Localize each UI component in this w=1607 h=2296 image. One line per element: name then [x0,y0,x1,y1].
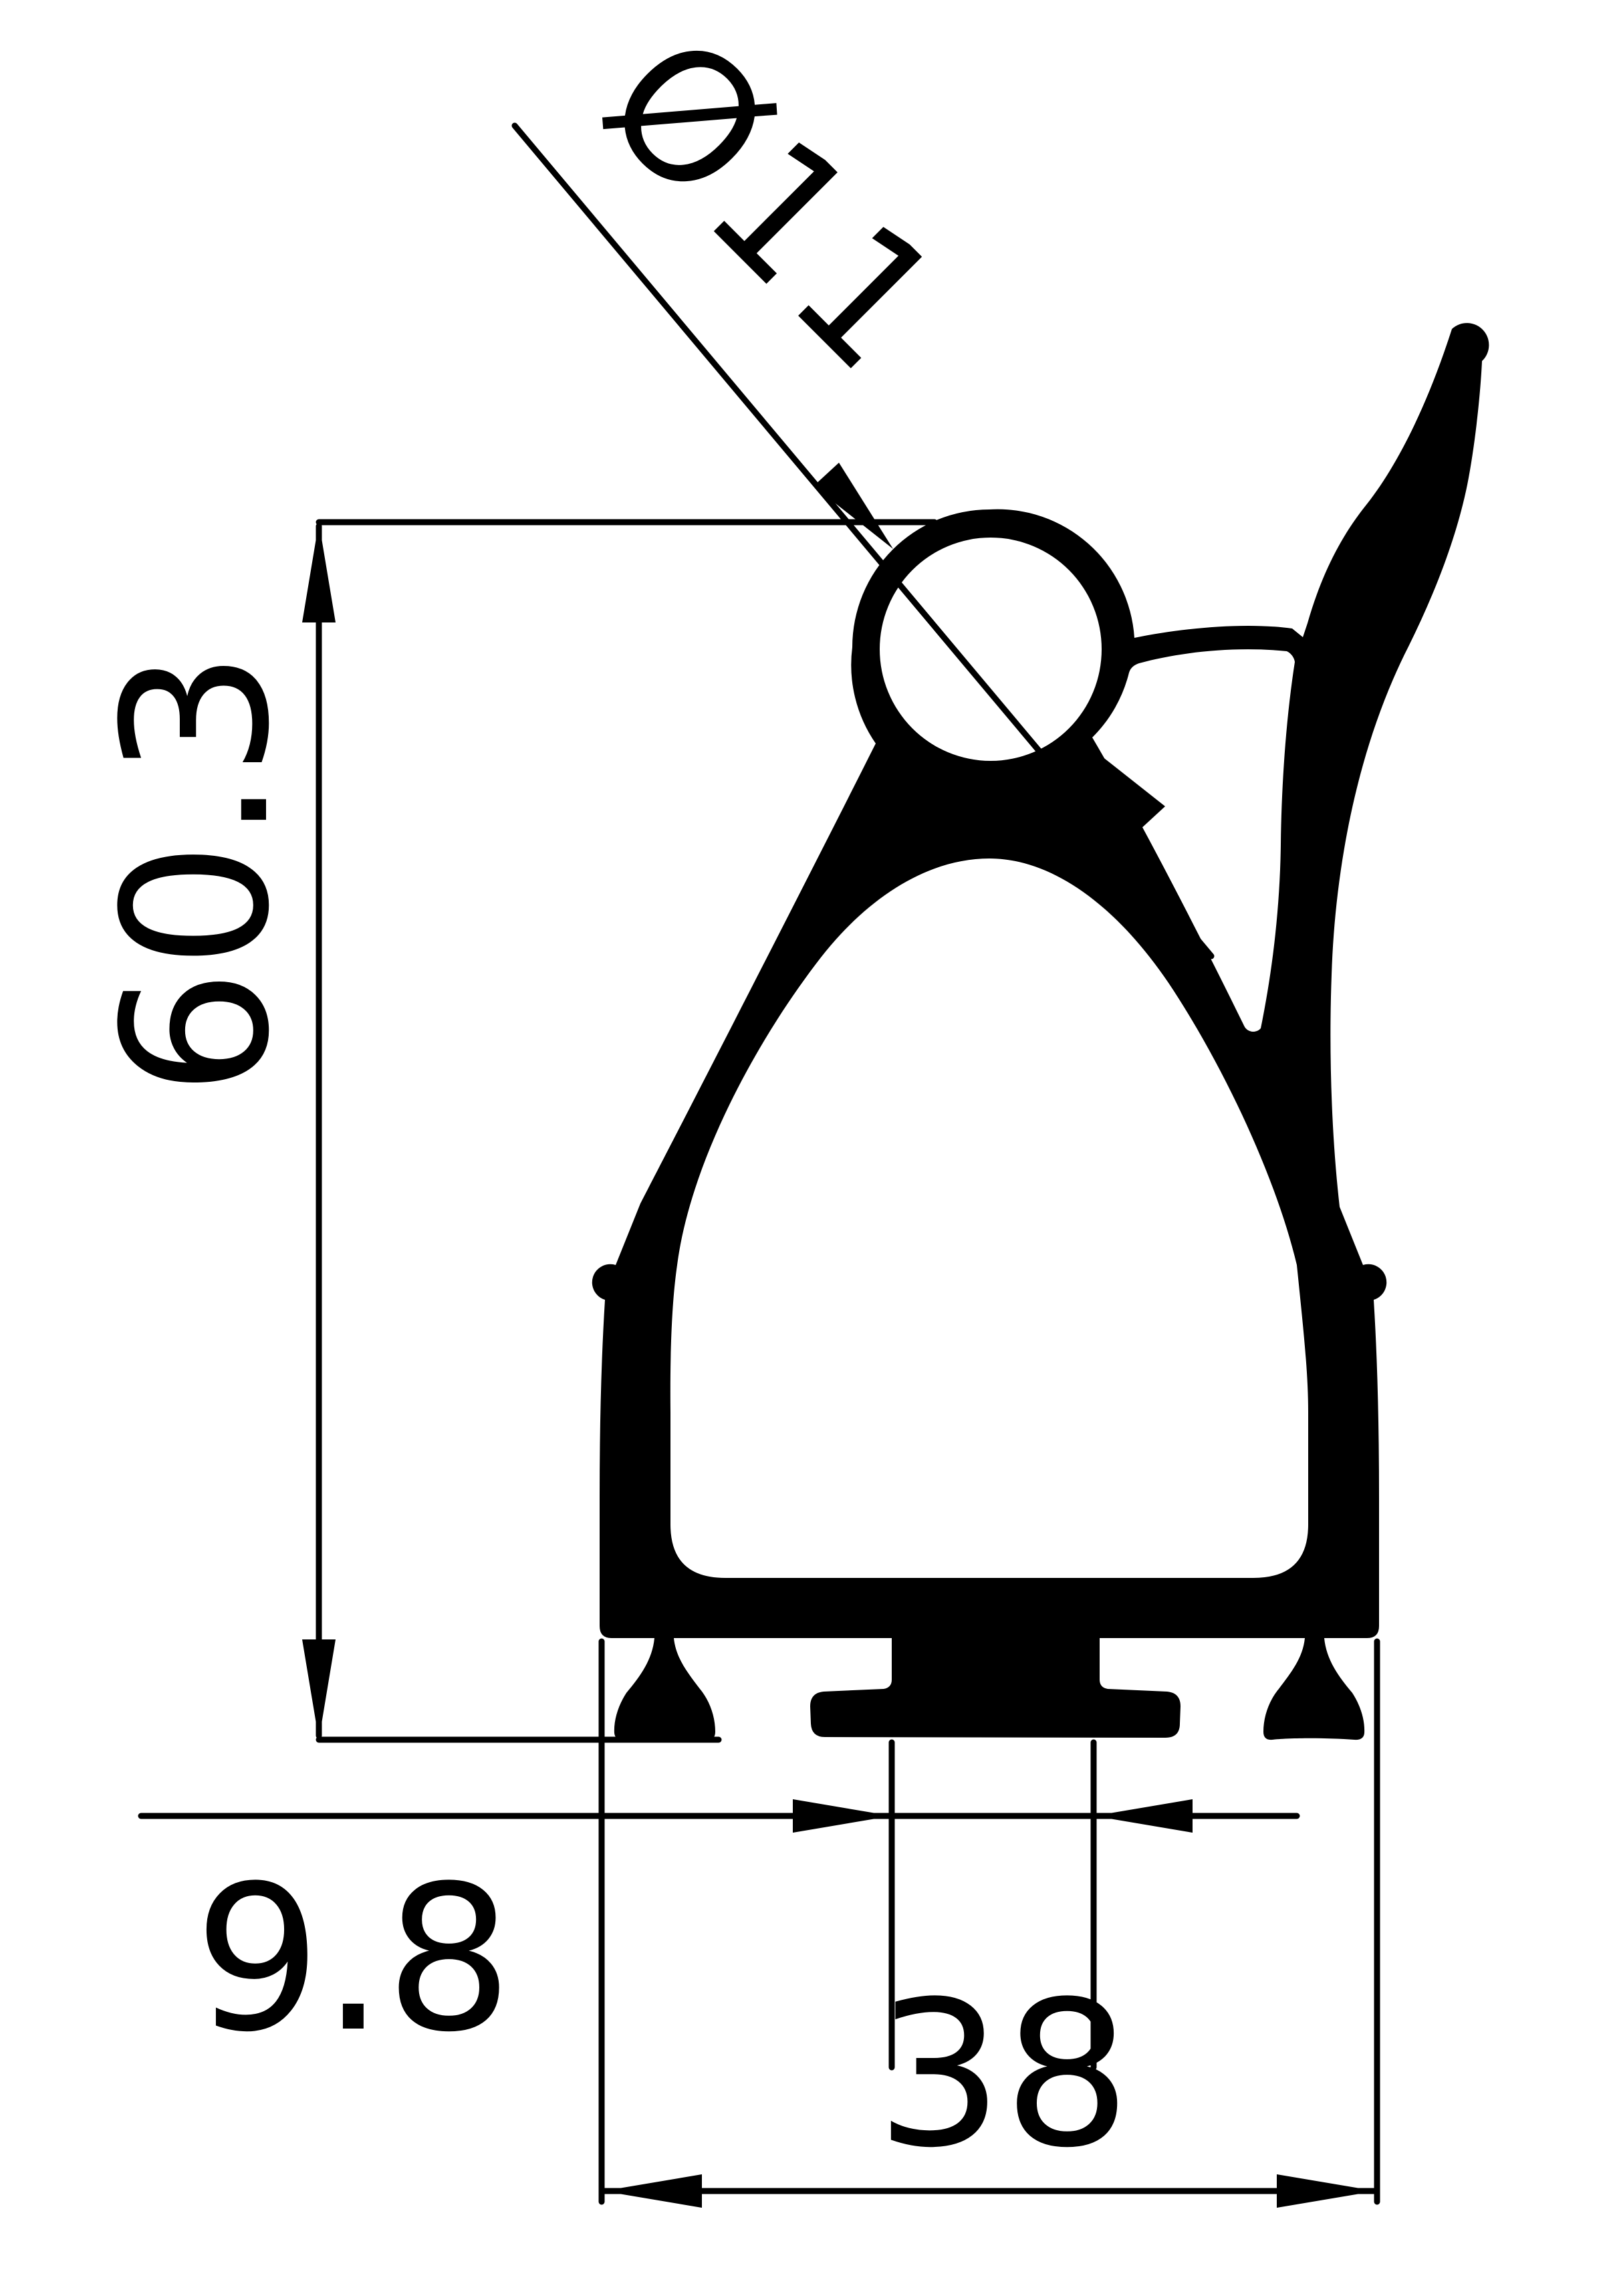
stem-width-label: 9.8 [194,1843,513,2076]
technical-drawing-page: Ø11 60.3 9.8 38 [0,0,1607,2296]
height-label: 60.3 [80,650,314,1097]
profile-drawing-canvas: Ø11 60.3 9.8 38 [0,0,1607,2296]
base-width-label: 38 [876,1958,1131,2192]
